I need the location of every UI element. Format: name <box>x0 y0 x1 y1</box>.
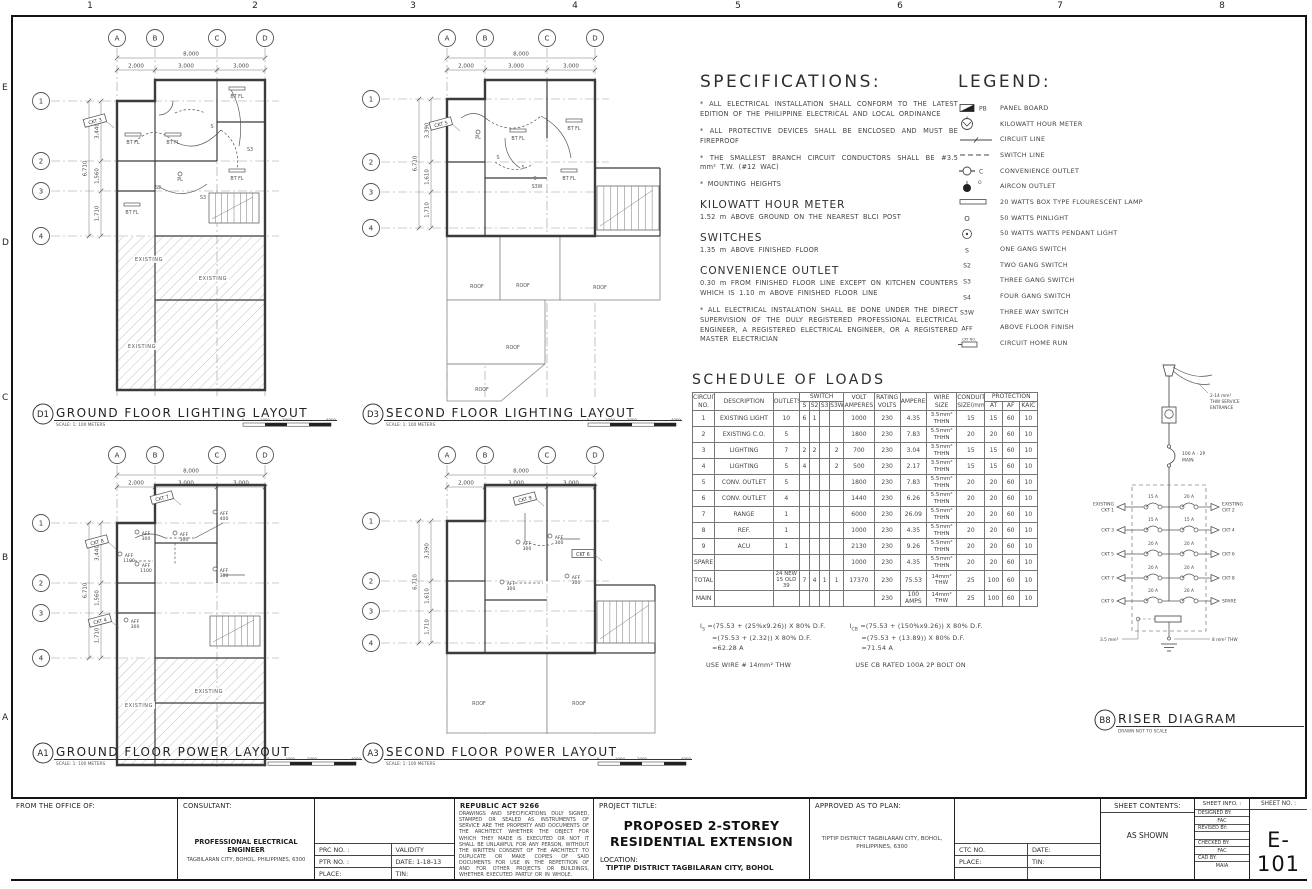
dim-label: 3,440 <box>95 545 101 561</box>
main-breaker-label: 100 A - 2P <box>1182 451 1205 457</box>
legend-item: CCONVENIENCE OUTLET <box>958 163 1176 179</box>
legend-item: PBPANEL BOARD <box>958 100 1176 116</box>
circuit-label: CKT 6 <box>1222 552 1235 558</box>
breaker-rating: 20 A <box>1184 494 1194 500</box>
schedule-cell: 26.09 <box>900 507 926 523</box>
plan-ground-floor-power-layout: ABCD12348,0002,0003,0003,0006,7103,4401,… <box>25 435 370 775</box>
circuit-label: SPARE <box>1222 599 1236 605</box>
schedule-cell: 15 <box>957 411 985 427</box>
schedule-cell <box>830 539 844 555</box>
schedule-cell: 14mm²THW <box>926 571 956 591</box>
annotation-label: BT FL <box>166 140 180 146</box>
schedule-cell: 10 <box>1019 523 1037 539</box>
grid-bubble-label: B <box>153 452 158 460</box>
circuit-line-icon <box>958 132 1000 147</box>
breaker-rating: 20 A <box>1148 588 1158 594</box>
schedule-cell: 4.35 <box>900 555 926 571</box>
legend-item-label: 50 WATTS PINLIGHT <box>1000 214 1069 222</box>
drawing-shape <box>962 342 977 347</box>
schedule-cell: 60 <box>1002 539 1019 555</box>
drawing-text: S <box>965 247 969 254</box>
schedule-cell: 8 <box>693 523 715 539</box>
schedule-cell <box>809 475 819 491</box>
schedule-cell <box>820 411 830 427</box>
fluorescent-lamp-symbol <box>165 133 181 136</box>
schedule-cell: 5.5mm²THHN <box>926 475 956 491</box>
dim-label: 3,000 <box>178 64 194 70</box>
schedule-cell: 20 <box>985 491 1002 507</box>
schedule-cell: 5.5mm²THHN <box>926 507 956 523</box>
schedule-cell: 6 <box>693 491 715 507</box>
date2-label: DATE: <box>1028 844 1100 855</box>
schedule-cell: 20 <box>957 507 985 523</box>
schedule-cell: 100 AMPS <box>900 590 926 606</box>
drawing-tag: A3 <box>367 749 378 759</box>
schedule-cell: REF. <box>715 523 774 539</box>
schedule-header-row: CIRCUIT NO.DESCRIPTIONOUTLETSSWITCHVOLT … <box>693 393 1038 402</box>
drawing-shape <box>1158 505 1162 509</box>
legend-item: S3THREE GANG SWITCH <box>958 273 1176 289</box>
schedule-cell <box>799 555 809 571</box>
schedule-cell: 230 <box>874 555 900 571</box>
circuit-homerun-callout: CKT 6 <box>572 550 594 558</box>
sheet-contents-label: SHEET CONTENTS: <box>1101 799 1194 813</box>
roof-edge <box>447 364 545 401</box>
drawing-text: O <box>978 180 982 186</box>
schedule-cell <box>809 590 819 606</box>
scale-bar-label: 1000 <box>605 417 615 422</box>
sheet-info-value <box>1195 831 1249 839</box>
dim-label: 8,000 <box>513 469 529 475</box>
schedule-cell: 1 <box>773 539 799 555</box>
schedule-cell: 2130 <box>844 539 874 555</box>
callout-leader <box>536 499 544 506</box>
main-breaker-label: MAIN <box>1182 458 1194 464</box>
approved-text: TIPTIP DISTRICT TAGBILARAN CITY, BOHOL, … <box>810 836 954 852</box>
dim-label: 1,560 <box>95 168 101 184</box>
tb-sheet-no: SHEET NO. : E-101 <box>1250 799 1307 879</box>
schedule-cell <box>799 427 809 443</box>
schedule-cell: 10 <box>1019 475 1037 491</box>
legend-block: LEGEND: PBPANEL BOARDKILOWATT HOUR METER… <box>958 72 1176 351</box>
schedule-cell: 2 <box>830 443 844 459</box>
annotation-label: S <box>521 165 524 171</box>
schedule-cell: MAIN <box>693 590 715 606</box>
ptr-label: PTR NO. : <box>315 856 392 867</box>
schedule-row: 6CONV. OUTLET414402306.265.5mm²THHN20206… <box>693 491 1038 507</box>
schedule-cell: 3 <box>693 443 715 459</box>
schedule-cell: CONV. OUTLET <box>715 491 774 507</box>
drawing-text: S2 <box>963 263 971 270</box>
annotation-label: ROOF <box>593 285 607 291</box>
spec-heading-convenience-outlet: CONVENIENCE OUTLET <box>700 265 958 277</box>
schedule-cell: 20 <box>985 539 1002 555</box>
schedule-cell <box>820 443 830 459</box>
schedule-cell: 17370 <box>844 571 874 591</box>
circuit-label: EXISTING <box>1093 502 1115 508</box>
scale-bar-label: 2000 <box>637 756 647 761</box>
dim-label: 3,440 <box>95 123 101 139</box>
schedule-cell: 10 <box>1019 443 1037 459</box>
schedule-cell: 4.35 <box>900 411 926 427</box>
schedule-cell: TOTAL <box>693 571 715 591</box>
schedule-cell: CONV. OUTLET <box>715 475 774 491</box>
calc-line: =(75.53 + (2.32)) X 80% D.F. <box>712 634 825 644</box>
legend-item-label: KILOWATT HOUR METER <box>1000 120 1083 128</box>
calc-line: =62.28 A <box>712 644 825 654</box>
consultant-label: CONSULTANT: <box>178 799 314 810</box>
drawing-shape <box>1158 552 1162 556</box>
schedule-cell <box>830 491 844 507</box>
scale-bar-label: 1000 <box>615 756 625 761</box>
scale-bar-label: 2000 <box>307 756 317 761</box>
schedule-cell <box>820 459 830 475</box>
schedule-cell: 6 <box>799 411 809 427</box>
sheet-info-key: CHECKED BY: <box>1195 839 1249 846</box>
col-header: SWITCH <box>799 393 843 402</box>
schedule-cell <box>830 475 844 491</box>
drawing-shape <box>1168 637 1171 640</box>
date-label: DATE: 1-18-13 <box>392 856 455 867</box>
schedule-cell <box>773 555 799 571</box>
schedule-cell: 10 <box>1019 539 1037 555</box>
switch-line <box>175 110 205 114</box>
circuit-label: CKT 7 <box>1101 576 1114 582</box>
circuit-arrow-left <box>1117 598 1125 605</box>
outlet-symbol <box>135 562 139 566</box>
legend-item-label: CIRCUIT HOME RUN <box>1000 339 1068 347</box>
drawing-text: CKT 2 <box>1222 508 1235 514</box>
drawing-text: S4 <box>963 294 971 301</box>
schedule-cell: 1440 <box>844 491 874 507</box>
circuit-arrow-right <box>1211 504 1219 511</box>
schedule-cell: 60 <box>1002 590 1019 606</box>
grid-bubble-label: A <box>445 452 450 460</box>
legend-item-label: ONE GANG SWITCH <box>1000 245 1067 253</box>
dim-label: 3,390 <box>425 543 431 559</box>
plan-ground-floor-lighting-layout: ABCD12348,0002,0003,0003,0006,7103,4401,… <box>25 18 345 433</box>
col-subheader: S3W <box>830 402 844 411</box>
schedule-cell <box>799 475 809 491</box>
schedule-cell <box>820 507 830 523</box>
grid-bubble-label: A <box>115 452 120 460</box>
schedule-cell: 2.17 <box>900 459 926 475</box>
col-subheader: S3 <box>820 402 830 411</box>
annotation-label: ROOF <box>516 283 530 289</box>
pinlight-symbol <box>178 172 182 176</box>
annotation-label: BT FL <box>125 210 139 216</box>
grid-bubble-label: 1 <box>39 98 43 106</box>
sheet-info-key: REVISED BY: <box>1195 824 1249 831</box>
circuit-label: EXISTING <box>1222 502 1244 508</box>
schedule-cell: 5 <box>693 475 715 491</box>
col-subheader: AF <box>1002 402 1019 411</box>
annotation-label: BT FL <box>562 176 576 182</box>
schedule-cell <box>715 571 774 591</box>
legend-item-label: FOUR GANG SWITCH <box>1000 292 1071 300</box>
text-icon: S2 <box>958 257 1000 272</box>
breaker-rating: 15 A <box>1148 517 1158 523</box>
location-label: LOCATION: <box>594 856 809 864</box>
circuit-arrow-right <box>1211 598 1219 605</box>
scale-bar-label: 4000 <box>671 417 681 422</box>
dim-label: 6,710 <box>83 582 89 598</box>
circuit-line <box>159 101 173 115</box>
schedule-cell: 1 <box>773 507 799 523</box>
text-icon: S3 <box>958 273 1000 288</box>
circuit-arrow-left <box>1117 551 1125 558</box>
circuit-line <box>195 523 223 538</box>
ruler-number: 1 <box>87 1 93 11</box>
grid-bubble-label: D <box>592 452 597 460</box>
circuit-homerun-callout: CKT 7 <box>150 491 173 505</box>
tb-republic-act: REPUBLIC ACT 9266 DRAWINGS AND SPECIFICA… <box>455 799 594 879</box>
schedule-cell: 230 <box>874 411 900 427</box>
breaker-rating: 15 A <box>1184 517 1194 523</box>
dim-label: 1,710 <box>95 205 101 221</box>
grid-bubble-label: 1 <box>39 520 43 528</box>
annotation-label: S <box>533 176 536 182</box>
schedule-cell: 10 <box>1019 411 1037 427</box>
drawing-shape <box>960 200 986 205</box>
dim-label: 2,000 <box>458 481 474 487</box>
schedule-cell: 500 <box>844 459 874 475</box>
ctc-label: CTC NO. <box>955 844 1028 855</box>
annotation-label: PL <box>177 177 183 183</box>
drawing-shape <box>1194 576 1198 580</box>
drawing-shape <box>1158 528 1162 532</box>
legend-item-label: PANEL BOARD <box>1000 104 1048 112</box>
col-header: CIRCUIT NO. <box>693 393 715 411</box>
sheet-info-label: SHEET INFO. : <box>1195 799 1249 809</box>
calc-line: =(75.53 + (150%x9.26)) X 80% D.F. <box>860 622 982 630</box>
schedule-cell: 20 <box>957 555 985 571</box>
circuit-line <box>158 184 207 194</box>
title-block: FROM THE OFFICE OF: CONSULTANT: PROFESSI… <box>11 797 1307 879</box>
ruler-number: 2 <box>252 1 258 11</box>
schedule-row: MAIN230100 AMPS14mm²THW251006010 <box>693 590 1038 606</box>
grid-bubble-label: D <box>592 35 597 43</box>
sheet-info-key: CAD BY: <box>1195 854 1249 861</box>
schedule-cell: 1 <box>773 523 799 539</box>
main-breaker <box>1169 448 1175 464</box>
schedule-cell: 2 <box>830 459 844 475</box>
schedule-cell: 20 <box>985 555 1002 571</box>
circuit-label: CKT 8 <box>1222 576 1235 582</box>
schedule-cell: 60 <box>1002 475 1019 491</box>
tb-sheet-info: SHEET INFO. : DESIGNED BY:FACREVISED BY:… <box>1195 799 1250 879</box>
sheet-number: E-101 <box>1250 828 1307 876</box>
schedule-cell: 6.26 <box>900 491 926 507</box>
scale-bar-label: 1000 <box>260 417 270 422</box>
scale-bar-label: 4000 <box>326 417 336 422</box>
schedule-cell: 5.5mm²THHN <box>926 555 956 571</box>
schedule-cell: 15 <box>957 459 985 475</box>
circuit-arrow-right <box>1211 551 1219 558</box>
schedule-cell: 25 <box>957 571 985 591</box>
schedule-row: 3LIGHTING72227002303.043.5mm²THHN1515601… <box>693 443 1038 459</box>
breaker-rating: 20 A <box>1184 541 1194 547</box>
col-header: DESCRIPTION <box>715 393 774 411</box>
grid-bubble-label: B <box>153 35 158 43</box>
service-entrance-label: ENTRANCE <box>1210 405 1234 411</box>
text-icon: AFF <box>958 320 1000 335</box>
schedule-cell: 3.04 <box>900 443 926 459</box>
annotation-label: ROOF <box>506 345 520 351</box>
drawing-title: SECOND FLOOR LIGHTING LAYOUT <box>386 406 635 420</box>
grid-bubble-label: B <box>483 35 488 43</box>
schedule-cell <box>809 507 819 523</box>
tb-project: PROJECT TILTLE: PROPOSED 2-STOREY RESIDE… <box>594 799 810 879</box>
roof-panel <box>547 653 655 733</box>
republic-act-text: DRAWINGS AND SPECIFICATIONS DULY SIGNED,… <box>455 810 593 879</box>
circuit-line <box>505 138 520 168</box>
schedule-cell: 10 <box>1019 590 1037 606</box>
col-subheader: S2 <box>809 402 819 411</box>
annotation-label: ROOF <box>472 701 486 707</box>
grid-bubble-label: B <box>483 452 488 460</box>
tb-sheet-contents: SHEET CONTENTS: AS SHOWN <box>1101 799 1195 879</box>
schedule-cell <box>830 555 844 571</box>
grid-bubble-label: 1 <box>369 518 373 526</box>
drawing-text: S3 <box>963 278 971 285</box>
dim-label: 1,610 <box>425 588 431 604</box>
scale-bar-label: 1000 <box>285 756 295 761</box>
schedule-cell: 1000 <box>844 411 874 427</box>
annotation-label: S2 <box>155 185 161 191</box>
fluorescent-lamp-symbol <box>566 119 582 122</box>
dim-label: 1,710 <box>425 202 431 218</box>
schedule-cell: 60 <box>1002 443 1019 459</box>
legend-items: PBPANEL BOARDKILOWATT HOUR METERCIRCUIT … <box>958 100 1176 351</box>
schedule-cell: 60 <box>1002 571 1019 591</box>
fluorescent-lamp-symbol <box>510 129 526 132</box>
schedule-cell: 5 <box>773 459 799 475</box>
circuit-homerun-callout: CKT 4 <box>88 614 111 628</box>
outlet-symbol <box>213 510 217 514</box>
roof-panel <box>447 653 547 733</box>
fluorescent-lamp-symbol <box>125 133 141 136</box>
drawing-scale: DRAWN NOT TO SCALE <box>1118 729 1168 735</box>
annotation-label: EXISTING <box>128 344 156 350</box>
stairs <box>597 186 659 230</box>
sheet-info-value: FAC <box>1195 846 1249 854</box>
schedule-cell: 4.35 <box>900 523 926 539</box>
calc-conclusion: USE WIRE # 14mm² THW <box>706 661 825 671</box>
schedule-cell <box>809 459 819 475</box>
drawing-shape <box>963 184 971 192</box>
col-header: OUTLETS <box>773 393 799 411</box>
outlet-symbol <box>548 534 552 538</box>
legend-item: AFFABOVE FLOOR FINISH <box>958 320 1176 336</box>
convenience-outlet-icon: C <box>958 163 1000 178</box>
office-label: FROM THE OFFICE OF: <box>11 799 177 810</box>
legend-item-label: CIRCUIT LINE <box>1000 135 1045 143</box>
drawing-text: C <box>979 169 983 176</box>
spec-text: 1.52 m ABOVE GROUND ON THE NEAREST BLCI … <box>700 213 958 223</box>
schedule-row: 9ACU121302309.265.5mm²THHN20206010 <box>693 539 1038 555</box>
annotation-label: S <box>210 124 213 130</box>
grid-bubble-label: C <box>545 452 550 460</box>
dim-label: 2,000 <box>458 64 474 70</box>
circuit-arrow-right <box>1211 575 1219 582</box>
annotation-label: BT FL <box>567 126 581 132</box>
annotation-label: AFF1100 <box>140 563 152 574</box>
schedule-cell <box>809 539 819 555</box>
annotation-label: AFF300 <box>507 581 516 592</box>
callout-leader <box>106 121 114 128</box>
schedule-cell: 10 <box>1019 571 1037 591</box>
approved-label: APPROVED AS TO PLAN: <box>810 799 954 810</box>
schedule-cell <box>830 411 844 427</box>
legend-item-label: ABOVE FLOOR FINISH <box>1000 323 1074 331</box>
col-header: VOLT AMPERES <box>844 393 874 411</box>
col-header: AMPERES <box>900 393 926 411</box>
schedule-cell: 4 <box>773 491 799 507</box>
schedule-row: 5CONV. OUTLET518002307.835.5mm²THHN20206… <box>693 475 1038 491</box>
service-drop <box>1173 367 1212 376</box>
drawing-shape <box>1158 599 1162 603</box>
annotation-label: AFF300 <box>131 619 140 630</box>
legend-item-label: SWITCH LINE <box>1000 151 1045 159</box>
schedule-cell: 230 <box>874 427 900 443</box>
grid-bubble-label: A <box>115 35 120 43</box>
home-run-icon: CKT NO. <box>958 336 1000 351</box>
stairs <box>597 601 655 643</box>
col-header: WIRE SIZE <box>926 393 956 411</box>
callout-leader <box>108 542 116 549</box>
schedule-cell: 20 <box>957 475 985 491</box>
annotation-label: S <box>496 155 499 161</box>
schedule-cell: LIGHTING <box>715 459 774 475</box>
grid-bubble-label: 4 <box>369 640 374 648</box>
schedule-row: 8REF.110002304.355.5mm²THHN20206010 <box>693 523 1038 539</box>
schedule-cell <box>799 539 809 555</box>
drawing-scale: SCALE: 1: 100 METERS <box>56 761 105 767</box>
schedule-cell: 20 <box>957 427 985 443</box>
outlet-symbol <box>173 531 177 535</box>
grid-bubble-label: C <box>215 452 220 460</box>
drawing-scale: SCALE: 1: 100 METERS <box>386 422 435 428</box>
outlet-symbol <box>118 552 122 556</box>
schedule-cell: ACU <box>715 539 774 555</box>
drawing-text: PB <box>979 106 987 113</box>
circuit-arrow-left <box>1117 527 1125 534</box>
drawing-text: CKT 1 <box>1101 508 1114 514</box>
schedule-cell: 4 <box>809 571 819 591</box>
legend-item: O50 WATTS PINLIGHT <box>958 210 1176 226</box>
schedule-cell: 4 <box>693 459 715 475</box>
service-entrance-label: 2-14 mm² <box>1210 393 1231 399</box>
grid-bubble-label: 1 <box>369 96 373 104</box>
schedule-cell: 230 <box>874 443 900 459</box>
drawing-text: AFF <box>961 325 973 332</box>
col-header: PROTECTION <box>985 393 1038 402</box>
schedule-cell <box>830 523 844 539</box>
fluorescent-lamp-symbol <box>561 169 577 172</box>
dim-label: 3,000 <box>233 64 249 70</box>
schedule-cell <box>820 539 830 555</box>
dim-label: 6,710 <box>83 160 89 176</box>
ruler-number: 5 <box>735 1 741 11</box>
schedule-cell: 1 <box>820 571 830 591</box>
col-subheader: AT <box>985 402 1002 411</box>
grid-bubble-label: 2 <box>369 578 373 586</box>
kwh-meter <box>1162 407 1176 423</box>
sheet-no-label: SHEET NO. : <box>1250 799 1307 810</box>
schedule-cell: 1800 <box>844 427 874 443</box>
scale-bar-segment <box>309 423 331 426</box>
